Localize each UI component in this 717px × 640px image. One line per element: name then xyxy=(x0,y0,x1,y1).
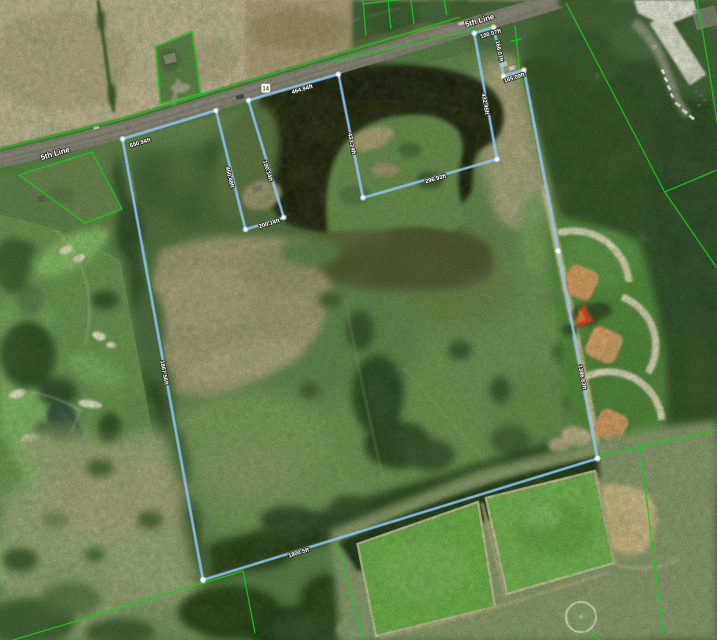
svg-text:14: 14 xyxy=(262,87,269,93)
